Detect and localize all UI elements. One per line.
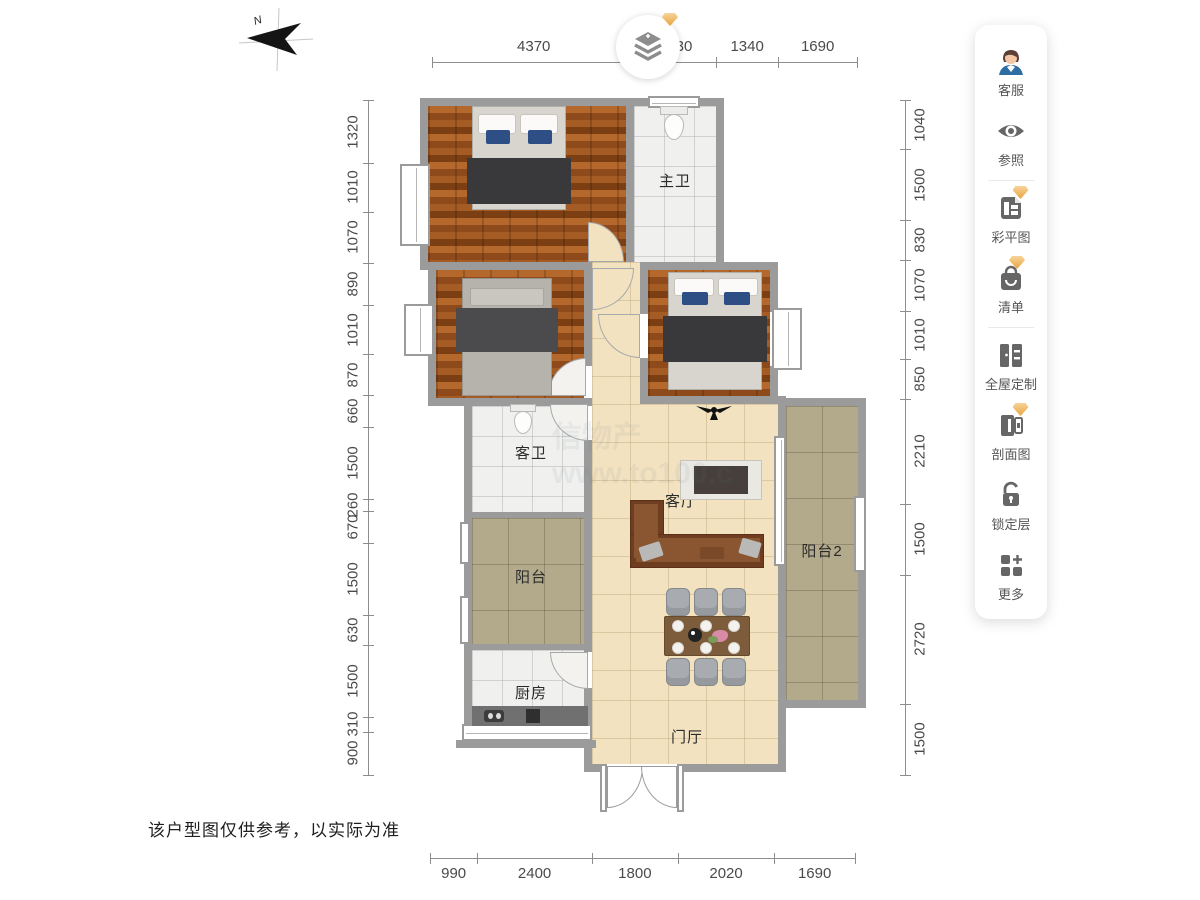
ruler-tick bbox=[900, 149, 911, 150]
tool-label: 全屋定制 bbox=[985, 374, 1037, 393]
ruler-tick bbox=[477, 853, 478, 864]
plate bbox=[672, 642, 684, 654]
wall bbox=[716, 98, 724, 270]
dimension-label: 830 bbox=[912, 228, 929, 253]
sofa-cushion bbox=[700, 547, 724, 559]
ruler-tick bbox=[592, 853, 593, 864]
side-toolbar: 客服 参照 彩平图 清单 bbox=[975, 25, 1047, 619]
ruler-tick bbox=[363, 395, 374, 396]
ruler-tick bbox=[363, 543, 374, 544]
ruler-tick bbox=[363, 263, 374, 264]
pillow bbox=[470, 288, 544, 306]
wall bbox=[464, 650, 472, 726]
dimension-label: 1500 bbox=[912, 523, 929, 556]
plate bbox=[728, 642, 740, 654]
bowl-detail bbox=[691, 631, 695, 635]
disclaimer-text: 该户型图仅供参考，以实际为准 bbox=[148, 816, 400, 841]
wall bbox=[778, 700, 866, 708]
dimension-label: 900 bbox=[345, 741, 362, 766]
wall bbox=[770, 262, 778, 312]
ruler-tick bbox=[900, 260, 911, 261]
tool-label: 更多 bbox=[998, 584, 1024, 603]
room-label-foyer: 门厅 bbox=[662, 726, 712, 747]
ruler-tick bbox=[678, 853, 679, 864]
more-grid-icon bbox=[995, 549, 1027, 581]
ruler-tick bbox=[363, 163, 374, 164]
wall bbox=[640, 358, 648, 398]
dimension-label: 1010 bbox=[345, 171, 362, 204]
entrance-door-leaf bbox=[677, 764, 684, 812]
wall bbox=[684, 764, 786, 772]
window bbox=[854, 496, 866, 572]
dimension-label: 1500 bbox=[345, 664, 362, 697]
cushion bbox=[486, 130, 510, 144]
bowl bbox=[688, 628, 702, 642]
bay-window bbox=[404, 304, 434, 356]
ruler-tick bbox=[363, 645, 374, 646]
ruler-tick bbox=[855, 853, 856, 864]
ruler-tick bbox=[430, 853, 431, 864]
ceiling-fan-icon bbox=[694, 400, 734, 422]
wall bbox=[464, 644, 592, 650]
dimension-label: 2020 bbox=[709, 865, 742, 882]
wall bbox=[584, 440, 592, 652]
cushion bbox=[528, 130, 552, 144]
dimension-label: 4370 bbox=[517, 38, 550, 55]
dimension-label: 1010 bbox=[912, 318, 929, 351]
stove bbox=[526, 709, 540, 723]
tool-label: 客服 bbox=[998, 80, 1024, 99]
wall bbox=[464, 398, 472, 518]
dimension-label: 870 bbox=[345, 362, 362, 387]
svg-text:N: N bbox=[252, 14, 263, 28]
ruler-tick bbox=[900, 775, 911, 776]
tool-label: 剖面图 bbox=[991, 444, 1030, 463]
wall bbox=[584, 270, 592, 366]
unlock-icon bbox=[995, 479, 1027, 511]
tv bbox=[694, 466, 748, 494]
dimension-label: 1320 bbox=[345, 115, 362, 148]
dimension-label: 1500 bbox=[345, 446, 362, 479]
ruler-line bbox=[905, 100, 906, 775]
ruler-tick bbox=[716, 57, 717, 68]
ruler-tick bbox=[774, 853, 775, 864]
room-label-guest-bath: 客卫 bbox=[506, 442, 556, 463]
dimension-label: 670 bbox=[345, 515, 362, 540]
plate bbox=[700, 642, 712, 654]
ruler-tick bbox=[363, 615, 374, 616]
window bbox=[460, 522, 470, 564]
dimension-label: 1690 bbox=[798, 865, 831, 882]
wall bbox=[584, 764, 600, 772]
dimension-label: 1340 bbox=[730, 38, 763, 55]
tool-reference[interactable]: 参照 bbox=[995, 115, 1027, 169]
dimension-label: 2400 bbox=[518, 865, 551, 882]
dimension-label: 1500 bbox=[345, 563, 362, 596]
kitchen-window bbox=[462, 724, 592, 741]
dining-chair bbox=[694, 658, 718, 686]
kitchen-sink bbox=[484, 710, 504, 722]
ruler-line bbox=[430, 858, 855, 859]
ruler-tick bbox=[363, 717, 374, 718]
tool-lock-layer[interactable]: 锁定层 bbox=[991, 479, 1030, 533]
wall bbox=[778, 566, 786, 706]
ruler-tick bbox=[900, 359, 911, 360]
duvet bbox=[456, 308, 558, 352]
plate bbox=[728, 620, 740, 632]
wall bbox=[778, 398, 866, 406]
ruler-tick bbox=[900, 311, 911, 312]
wall bbox=[778, 700, 786, 772]
ruler-tick bbox=[432, 57, 433, 68]
plate bbox=[700, 620, 712, 632]
ruler-tick bbox=[900, 100, 911, 101]
dimension-label: 1800 bbox=[618, 865, 651, 882]
ruler-tick bbox=[363, 775, 374, 776]
brand-logo[interactable] bbox=[616, 15, 680, 79]
dining-chair bbox=[722, 658, 746, 686]
dimension-label: 2720 bbox=[912, 623, 929, 656]
sink-basin bbox=[488, 713, 493, 719]
wall bbox=[770, 366, 778, 398]
sink-basin bbox=[496, 713, 501, 719]
cushion bbox=[724, 292, 750, 305]
window bbox=[460, 596, 470, 644]
customer-service-avatar-icon bbox=[995, 45, 1027, 77]
ruler-tick bbox=[363, 100, 374, 101]
dimension-label: 890 bbox=[345, 272, 362, 297]
duvet bbox=[467, 158, 571, 204]
room-label-master-bath: 主卫 bbox=[650, 170, 700, 191]
ruler-tick bbox=[857, 57, 858, 68]
room-label-kitchen: 厨房 bbox=[506, 682, 556, 703]
ruler-line bbox=[368, 100, 369, 775]
ruler-tick bbox=[900, 704, 911, 705]
north-arrow-icon: N bbox=[235, 5, 317, 75]
wall bbox=[464, 512, 592, 518]
entrance-door-arc bbox=[607, 766, 643, 808]
dining-chair bbox=[694, 588, 718, 616]
dimension-label: 1500 bbox=[912, 723, 929, 756]
entrance-door-leaf bbox=[600, 764, 607, 812]
ruler-tick bbox=[900, 220, 911, 221]
north-compass: N bbox=[235, 5, 317, 80]
dining-chair bbox=[666, 658, 690, 686]
wall bbox=[456, 740, 596, 748]
plate bbox=[672, 620, 684, 632]
dimension-label: 2210 bbox=[912, 435, 929, 468]
ruler-tick bbox=[900, 504, 911, 505]
dining-chair bbox=[666, 588, 690, 616]
premium-gem-icon bbox=[662, 13, 678, 26]
duvet bbox=[663, 316, 767, 362]
ruler-tick bbox=[363, 305, 374, 306]
cushion bbox=[682, 292, 708, 305]
dimension-label: 850 bbox=[912, 366, 929, 391]
tool-customer-service[interactable]: 客服 bbox=[995, 45, 1027, 99]
wall bbox=[640, 262, 778, 270]
ruler-tick bbox=[363, 732, 374, 733]
dimension-label: 1070 bbox=[345, 220, 362, 253]
toolbar-divider bbox=[988, 180, 1034, 181]
flower-leaves bbox=[708, 636, 718, 643]
tool-list[interactable]: 清单 bbox=[995, 262, 1027, 316]
dimension-label: 660 bbox=[345, 399, 362, 424]
ruler-tick bbox=[363, 212, 374, 213]
shopping-bag-icon bbox=[995, 262, 1027, 294]
dimension-label: 1500 bbox=[912, 168, 929, 201]
tool-more[interactable]: 更多 bbox=[995, 549, 1027, 603]
dimension-label: 310 bbox=[345, 712, 362, 737]
ruler-tick bbox=[900, 575, 911, 576]
wall bbox=[626, 106, 634, 262]
dimension-label: 630 bbox=[345, 618, 362, 643]
bay-window bbox=[400, 164, 430, 246]
eye-icon bbox=[995, 115, 1027, 147]
room-label-balcony2: 阳台2 bbox=[790, 540, 854, 561]
layers-plus-icon bbox=[628, 27, 668, 67]
ruler-tick bbox=[363, 427, 374, 428]
tool-whole-house-custom[interactable]: 全屋定制 bbox=[985, 339, 1037, 393]
dimension-label: 1010 bbox=[345, 313, 362, 346]
ruler-tick bbox=[900, 399, 911, 400]
bay-window bbox=[772, 308, 802, 370]
dimension-label: 990 bbox=[441, 865, 466, 882]
wall bbox=[640, 270, 648, 314]
tool-section-view[interactable]: 剖面图 bbox=[991, 409, 1030, 463]
ruler-tick bbox=[363, 354, 374, 355]
tool-label: 清单 bbox=[998, 297, 1024, 316]
tool-label: 锁定层 bbox=[991, 514, 1030, 533]
entrance-door-arc bbox=[641, 766, 677, 808]
dimension-label: 1040 bbox=[912, 108, 929, 141]
tool-color-plan[interactable]: 彩平图 bbox=[991, 192, 1030, 246]
room-label-balcony: 阳台 bbox=[506, 566, 556, 587]
dining-chair bbox=[722, 588, 746, 616]
dimension-label: 1690 bbox=[801, 38, 834, 55]
dimension-label: 1070 bbox=[912, 269, 929, 302]
ruler-tick bbox=[363, 499, 374, 500]
tool-label: 彩平图 bbox=[991, 227, 1030, 246]
ruler-tick bbox=[778, 57, 779, 68]
toolbar-divider bbox=[988, 327, 1034, 328]
wardrobe-icon bbox=[995, 339, 1027, 371]
ruler-tick bbox=[363, 511, 374, 512]
tool-label: 参照 bbox=[998, 150, 1024, 169]
balcony2-sliding-door bbox=[774, 436, 786, 566]
wall bbox=[420, 262, 592, 270]
